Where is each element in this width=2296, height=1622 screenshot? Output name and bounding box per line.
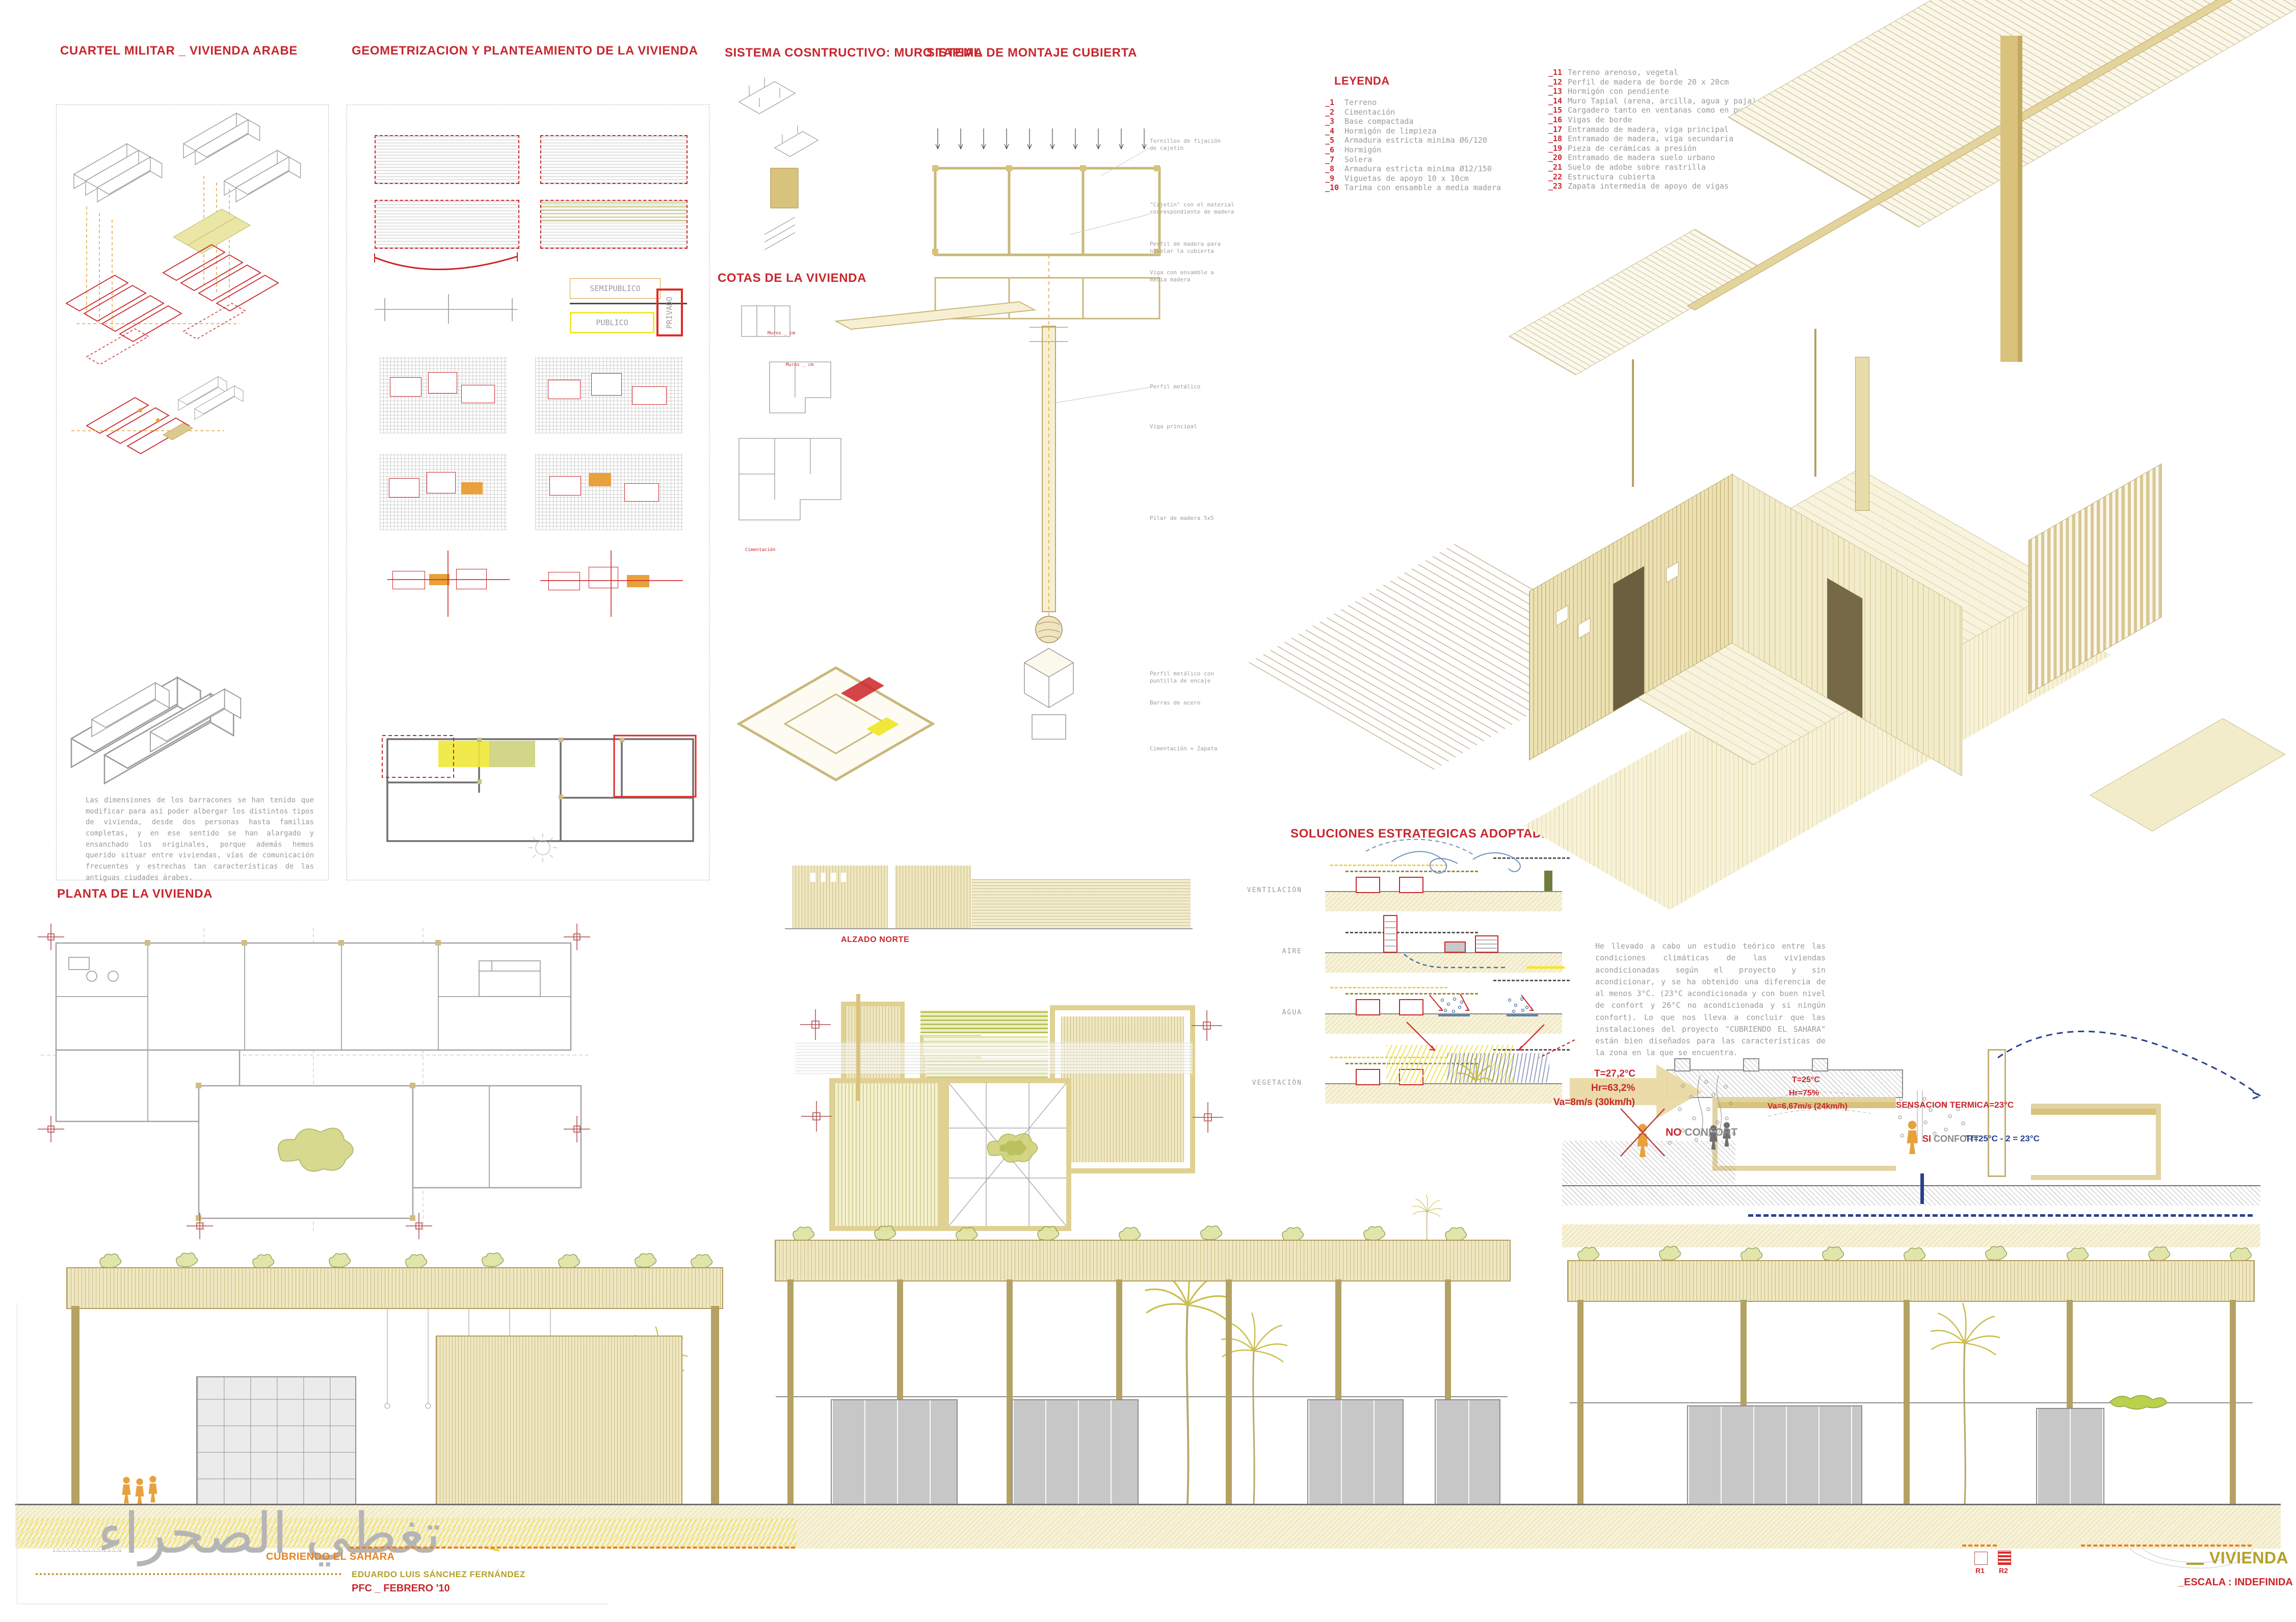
strategy-linework — [1305, 826, 1590, 1193]
legend-item: _12Perfil de madera de borde 20 x 20cm — [1548, 77, 1765, 87]
axono-platform — [2090, 718, 2286, 831]
montaje-frame — [932, 165, 1160, 319]
montaje-arrows — [936, 128, 1146, 149]
montaje-annotation: Perfil de madera para nivelar la cubiert… — [1150, 241, 1231, 255]
legend-item: _18Entramado de madera, viga secundaria — [1548, 134, 1765, 144]
revision-label-r1: R1 — [1975, 1567, 1985, 1574]
landing-strips — [173, 209, 250, 253]
axono-post — [2000, 36, 2022, 362]
project-date: PFC _ FEBRERO '10 — [352, 1583, 450, 1593]
final-plan — [382, 736, 696, 862]
legend-item: _1Terreno — [1325, 98, 1501, 108]
cotas-axono — [739, 668, 933, 780]
courtyard-plant — [988, 1134, 1038, 1162]
presentation-board: CUARTEL MILITAR _ VIVIENDA ARABE GEOMETR… — [0, 0, 2296, 1622]
revision-box-r2 — [1998, 1551, 2011, 1565]
montaje-annotation: Viga con ensamble a media madera — [1150, 269, 1231, 284]
montaje-annotation: Perfil metálico — [1150, 383, 1226, 390]
legend-col2: _11Terreno arenoso, vegetal _12Perfil de… — [1548, 68, 1765, 191]
orange-dashed-line — [1962, 1545, 1997, 1547]
revision-box-r1 — [1974, 1552, 1988, 1565]
legend-item: _22Estructura cubierta — [1548, 172, 1765, 182]
temperature-formula: Tf=25°C - 2 = 23°C — [1965, 1134, 2040, 1144]
geometrizacion-linework — [347, 104, 708, 879]
axono-chimney — [1855, 357, 1869, 511]
section1-roof — [66, 1267, 723, 1309]
legend-item: _20Entramado de madera suelo urbano — [1548, 153, 1765, 163]
glazed-wall-grid — [196, 1376, 356, 1507]
legend-item: _21Suelo de adobe sobre rastrilla — [1548, 163, 1765, 172]
wind-curls — [1366, 840, 1520, 873]
sheet-name: VIVIENDA — [2209, 1550, 2288, 1566]
legend-item: _23Zapata intermedia de apoyo de vigas — [1548, 181, 1765, 191]
mixed-cluster — [71, 377, 243, 454]
section1-post — [711, 1306, 719, 1505]
si-wind: Va=6,67m/s (24km/h) — [1767, 1102, 1848, 1111]
section2-room — [1435, 1399, 1500, 1507]
agua-elements — [1430, 994, 1538, 1016]
section1-tapial-wall — [436, 1336, 682, 1507]
legend-item: _3Base compactada — [1325, 117, 1501, 126]
legend-item: _19Pieza de cerámicas a presión — [1548, 144, 1765, 153]
axono-doorway — [1827, 578, 1862, 718]
section-title-planta: PLANTA DE LA VIVIENDA — [57, 888, 213, 900]
strategy-row-label: AGUA — [1221, 1009, 1302, 1016]
section-title-cuartel: CUARTEL MILITAR _ VIVIENDA ARABE — [60, 45, 298, 57]
strategy-row-label: VENTILACIÓN — [1221, 887, 1302, 894]
sheet-scale: _ESCALA : INDEFINIDA — [2178, 1577, 2293, 1587]
section2-post — [787, 1279, 794, 1505]
sensacion-termica: SENSACION TERMICA=23°C — [1896, 1100, 2014, 1110]
strategy-row-label: AIRE — [1221, 948, 1302, 955]
planta-vivienda-plan — [31, 912, 673, 1249]
axono-doorway — [1613, 566, 1644, 712]
revision-label-r2: R2 — [1999, 1567, 2008, 1574]
si-temp: T=25°C — [1792, 1076, 1820, 1085]
strategy-row-label: VEGETACIÓN — [1221, 1080, 1302, 1086]
montaje-annotation: Pilar de madera 5x5 — [1150, 515, 1226, 522]
montaje-annotation: Viga principal — [1150, 423, 1226, 430]
montaje-column — [836, 148, 1150, 739]
axono-thin-post — [1814, 329, 1816, 477]
axono-roof-plane-small — [1509, 229, 1762, 375]
orange-dashed-line — [350, 1547, 795, 1549]
section2-room — [1012, 1399, 1139, 1507]
section3-roof — [1567, 1260, 2255, 1302]
axono-thin-post — [1632, 359, 1634, 487]
section2-roof — [775, 1240, 1511, 1281]
page-edge-line — [17, 1303, 17, 1604]
section2-post — [1226, 1279, 1232, 1505]
montaje-annotation: Barras de acero — [1150, 699, 1226, 707]
tapial-sketches — [739, 77, 818, 250]
cuartel-diagrams — [56, 104, 329, 879]
legend-item: _5Armadura estricta minima Ø6/120 — [1325, 136, 1501, 145]
section1-post — [71, 1306, 80, 1505]
construccion-montaje-linework — [714, 66, 1172, 790]
green-vegetation-patch — [2110, 1395, 2167, 1409]
legend-item: _2Cimentación — [1325, 108, 1501, 117]
tapial-block — [771, 168, 798, 208]
section3-post — [1577, 1300, 1584, 1505]
montaje-annotation: "Cajetín" con el material correspondient… — [1150, 201, 1236, 216]
section2-room — [831, 1399, 958, 1507]
si-humidity: Hr=75% — [1789, 1089, 1819, 1098]
cotas-label: Cimentación — [745, 548, 776, 553]
no-temp: T=27,2°C — [1594, 1068, 1635, 1080]
roofplan-linework — [780, 856, 1254, 1234]
author-name: EDUARDO LUIS SÁNCHEZ FERNÁNDEZ — [352, 1570, 525, 1579]
wind-arrow — [1570, 1064, 1702, 1119]
no-wind: Va=8m/s (30km/h) — [1553, 1097, 1635, 1108]
axono-window — [1556, 605, 1568, 626]
section3-room — [1687, 1405, 1862, 1507]
montaje-annotation: Perfil metálico con puntilla de encaje — [1150, 670, 1236, 685]
legend-item: _6Hormigón — [1325, 145, 1501, 155]
page-edge-line — [17, 1604, 608, 1604]
orange-dotted-line — [36, 1573, 341, 1575]
legend-title: LEYENDA — [1334, 75, 1390, 87]
section3-post — [1904, 1300, 1910, 1505]
legend-item: _4Hormigón de limpieza — [1325, 126, 1501, 136]
legend-item: _7Solera — [1325, 155, 1501, 165]
air-pipe — [1920, 1173, 1924, 1204]
orange-dashed-line — [2081, 1545, 2252, 1547]
section-title-geometrizacion: GEOMETRIZACION Y PLANTEAMIENTO DE LA VIV… — [352, 45, 698, 57]
axono-window — [1578, 618, 1590, 639]
legend-item: _14Muro Tapial (arena, arcilla, agua y p… — [1548, 96, 1765, 106]
cotas-plans — [739, 306, 841, 520]
cotas-label: Muros _ cm — [786, 363, 813, 368]
iso-barracks — [74, 113, 301, 202]
section3-room — [2036, 1408, 2104, 1507]
legend-item: _17Entramado de madera, viga principal — [1548, 125, 1765, 135]
person-si-confort — [1907, 1121, 1918, 1154]
olive-dash — [2186, 1563, 2204, 1565]
section2-room — [1307, 1399, 1404, 1507]
section-title-montaje: SISTEMA DE MONTAJE CUBIERTA — [927, 47, 1137, 59]
cotas-label: Muros _ cm — [768, 331, 795, 336]
red-plan-bars — [66, 245, 278, 364]
no-humidity: Hr=63,2% — [1591, 1083, 1635, 1094]
section3-post — [2230, 1300, 2236, 1505]
legend-col1: _1Terreno _2Cimentación _3Base compactad… — [1325, 98, 1501, 193]
legend-item: _11Terreno arenoso, vegetal — [1548, 68, 1765, 77]
no-confort-label: NO CONFORT — [1666, 1127, 1737, 1139]
aire-elements — [1384, 915, 1565, 967]
legend-item: _10Tarima con ensamble a media madera — [1325, 183, 1501, 193]
project-subtitle: CUBRIENDO EL SAHARA — [266, 1552, 394, 1562]
iso-city-mass — [71, 677, 241, 783]
axono-window — [1666, 562, 1678, 583]
venturi-air-curve — [1998, 1031, 2260, 1099]
montaje-annotation: Tornillos de fijación de cajetín — [1150, 138, 1226, 152]
legend-item: _13Hormigón con pendiente — [1548, 87, 1765, 96]
legend-item: _9Viguetas de apoyo 10 x 10cm — [1325, 174, 1501, 184]
legend-item: _8Armadura estricta minima Ø12/150 — [1325, 164, 1501, 174]
cuartel-paragraph: Las dimensiones de los barracones se han… — [86, 795, 314, 884]
montaje-annotation: Cimentación + Zapata — [1150, 745, 1231, 752]
